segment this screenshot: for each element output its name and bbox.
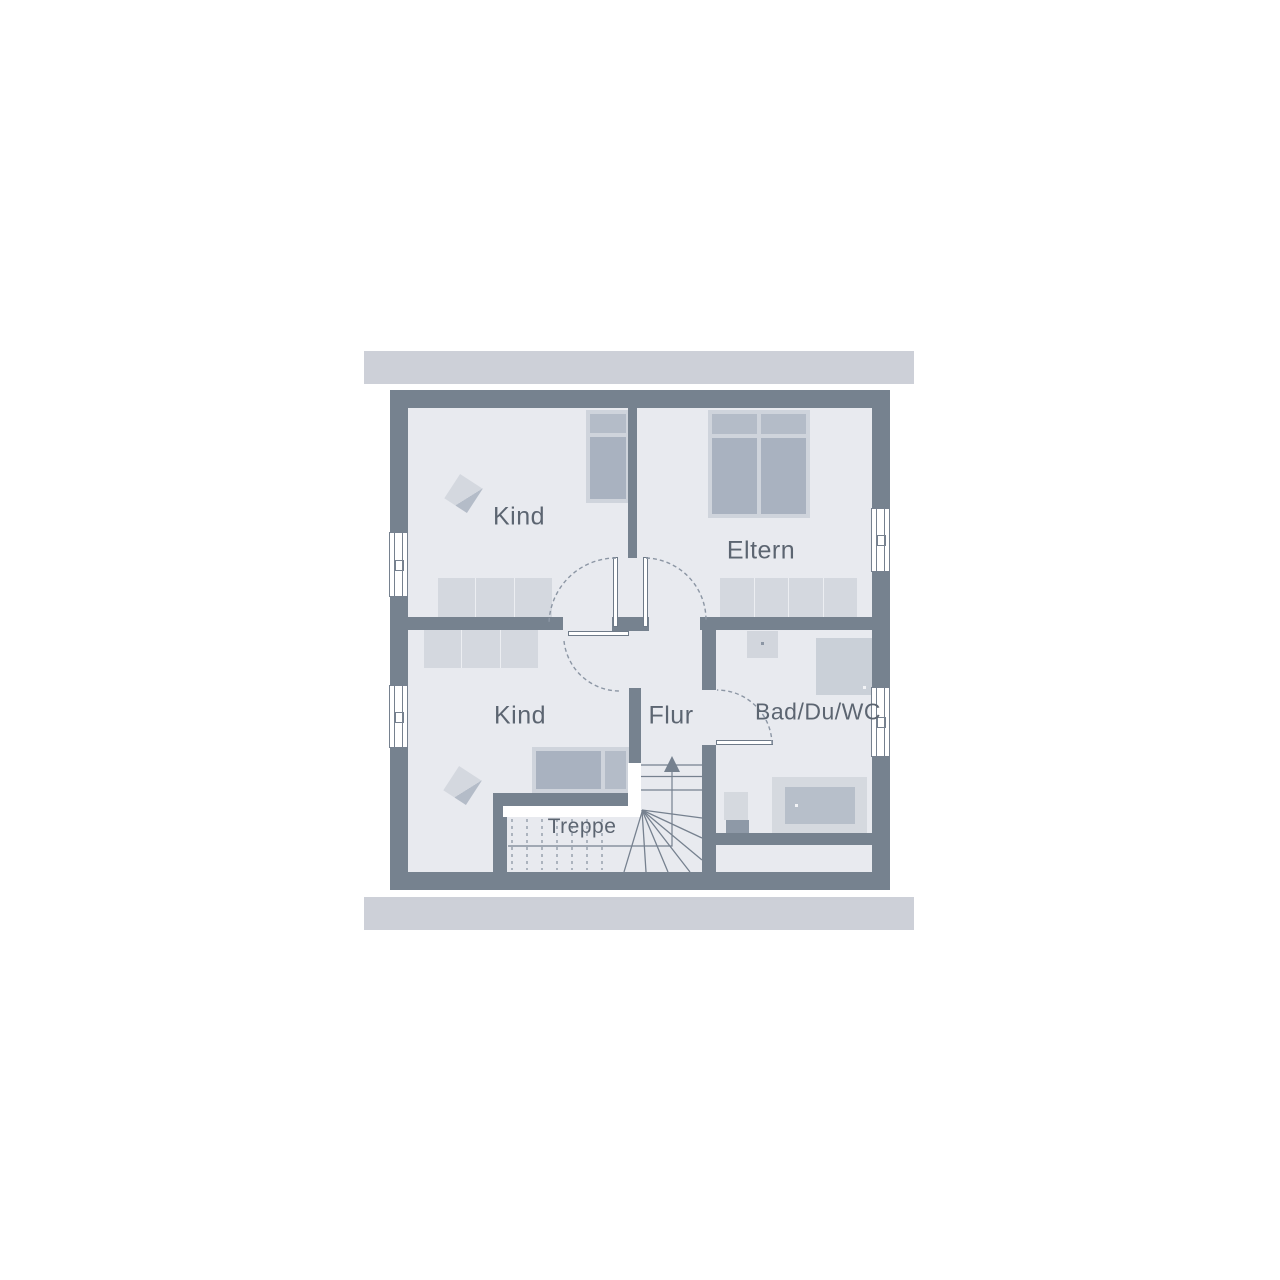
window-right-upper (871, 508, 890, 572)
wall-hall-bath-upper (702, 617, 716, 690)
wall-parents-bath (700, 617, 872, 630)
bathtub (772, 777, 867, 833)
window-left-upper (389, 532, 408, 597)
wall-bath-bottom (702, 833, 872, 845)
desk-child-room-bottom (409, 750, 449, 823)
wall-stair-top (493, 793, 641, 806)
toilet-tank (726, 820, 749, 833)
double-bed-parents-room (708, 410, 810, 518)
bed-mattress (761, 438, 806, 514)
bed-mattress (590, 437, 626, 499)
room-label-flur: Flur (648, 702, 693, 731)
outer-wall-bottom (390, 872, 890, 890)
bathroom-sink (747, 631, 778, 658)
door-leaf-bath (716, 740, 773, 745)
floor-plan-canvas: Kind Eltern Kind Flur Bad/Du/WC Treppe (0, 0, 1280, 1280)
stair-landing-edge-vertical (628, 763, 641, 817)
bed-child-room-bottom (532, 747, 630, 793)
bed-mattress (712, 438, 757, 514)
wardrobe-child-room-bottom (424, 630, 538, 668)
door-leaf-child-top (613, 557, 618, 627)
wall-hall-child (629, 688, 641, 765)
wall-stair-bath (702, 745, 716, 872)
window-left-lower (389, 685, 408, 748)
window-handle (395, 560, 404, 571)
window-handle (395, 712, 404, 723)
roof-edge-top (364, 351, 914, 384)
outer-wall-right (872, 390, 890, 890)
room-label-kind-bottom: Kind (494, 702, 546, 731)
wall-child-parents (628, 408, 637, 558)
roof-edge-bottom (364, 897, 914, 930)
room-label-bad: Bad/Du/WC (755, 699, 881, 726)
bathtub-drain (795, 804, 798, 807)
window-handle (877, 535, 886, 546)
door-leaf-parents (643, 557, 648, 627)
outer-wall-top (390, 390, 890, 408)
bed-pillow (590, 414, 626, 433)
desk-child-room-top (410, 456, 450, 531)
door-leaf-child-bottom (568, 631, 629, 636)
bed-child-room-top (586, 410, 630, 503)
wardrobe-parents-room (720, 578, 857, 617)
bed-pillow (761, 414, 806, 434)
toilet (724, 792, 748, 820)
room-label-treppe: Treppe (548, 815, 617, 839)
bed-pillow (712, 414, 757, 434)
bed-pillow (605, 751, 626, 789)
room-label-eltern: Eltern (727, 537, 795, 566)
room-label-kind-top: Kind (493, 503, 545, 532)
outer-wall-left (390, 390, 408, 890)
shower (816, 638, 872, 695)
wall-between-child-rooms (408, 617, 563, 630)
bed-mattress (536, 751, 601, 789)
wardrobe-child-room-top (438, 578, 552, 617)
